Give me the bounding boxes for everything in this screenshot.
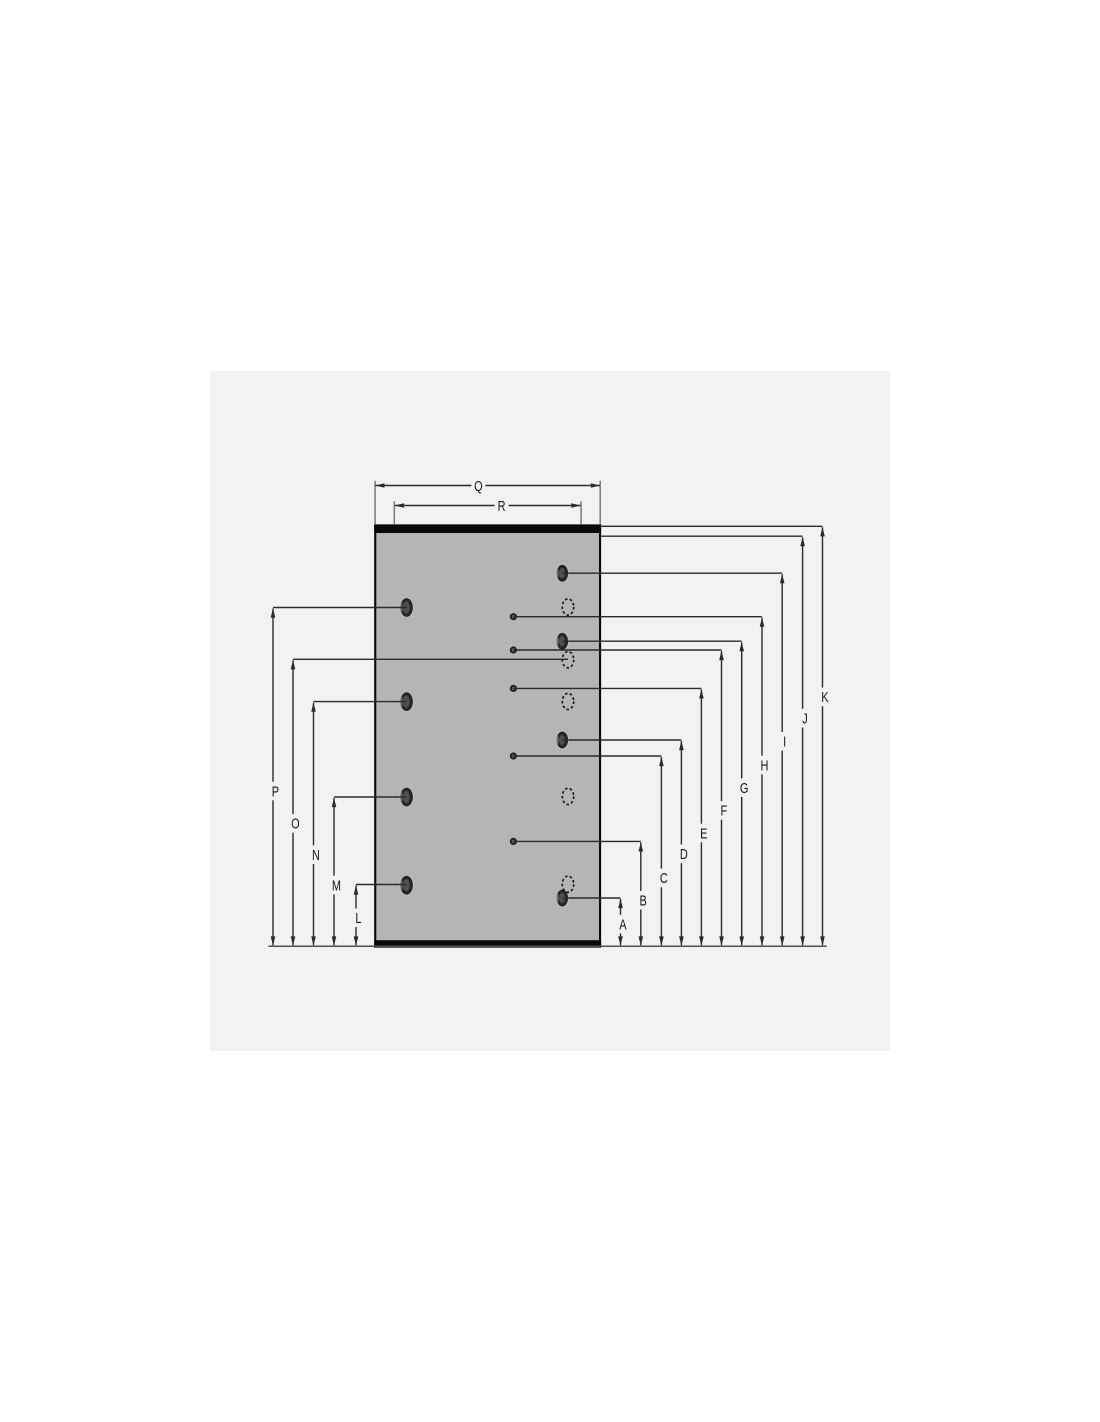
svg-text:G: G xyxy=(740,779,749,796)
svg-text:A: A xyxy=(619,916,627,933)
svg-text:D: D xyxy=(680,846,688,863)
svg-text:Q: Q xyxy=(474,477,483,494)
svg-text:C: C xyxy=(660,870,668,887)
svg-text:M: M xyxy=(332,877,341,894)
svg-text:L: L xyxy=(355,909,361,926)
svg-text:R: R xyxy=(498,497,506,514)
svg-text:P: P xyxy=(272,783,279,800)
svg-text:J: J xyxy=(802,710,807,727)
svg-text:E: E xyxy=(700,825,708,842)
svg-text:I: I xyxy=(783,733,786,750)
svg-text:O: O xyxy=(291,815,300,832)
svg-text:F: F xyxy=(721,802,728,819)
svg-text:B: B xyxy=(640,892,647,909)
svg-text:H: H xyxy=(760,757,768,774)
svg-text:K: K xyxy=(821,689,829,706)
svg-text:N: N xyxy=(312,846,320,863)
